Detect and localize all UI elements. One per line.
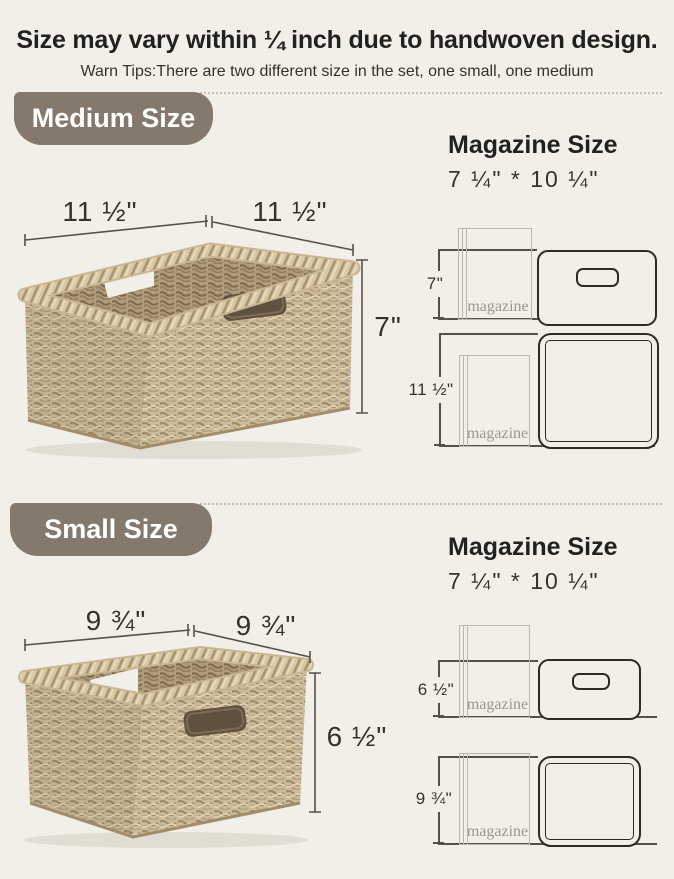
basket-top-inner-outline	[545, 763, 634, 840]
magazine-label: magazine	[466, 696, 529, 714]
basket-handle-slot	[572, 673, 610, 690]
page-subtitle: Warn Tips:There are two different size i…	[0, 63, 674, 81]
small-basket-illustration: 9 ¾" 9 ¾" 6 ½"	[16, 600, 412, 862]
medium-width-label: 11 ½"	[62, 196, 137, 228]
medium-depth-label: 11 ½"	[252, 196, 327, 228]
small-width-label: 9 ¾"	[86, 605, 147, 637]
medium-size-badge: Medium Size	[14, 92, 213, 145]
infographic-canvas: Size may vary within ¼ inch due to handw…	[0, 0, 674, 879]
medium-height-label: 7"	[374, 311, 402, 343]
basket-side-dim-label: 9 ¾"	[414, 786, 454, 812]
dotted-divider	[200, 92, 662, 94]
basket-handle-slot	[576, 268, 619, 287]
medium-magazine-panel: Magazine Size 7 ¼" * 10 ¼" magazine 7"	[420, 126, 674, 456]
small-size-badge: Small Size	[10, 503, 212, 556]
magazine-size-heading: Magazine Size	[448, 131, 618, 160]
magazine-dimensions: 7 ¼" * 10 ¼"	[448, 568, 600, 595]
magazine-label: magazine	[466, 425, 529, 443]
small-height-label: 6 ½"	[327, 721, 388, 753]
basket-height-dim-label: 7"	[425, 271, 446, 297]
dotted-divider	[200, 503, 662, 505]
magazine-size-heading: Magazine Size	[448, 533, 618, 562]
small-magazine-panel: Magazine Size 7 ¼" * 10 ¼" magazine 6 ½"	[420, 528, 674, 858]
basket-front-outline	[538, 659, 641, 720]
magazine-label: magazine	[466, 823, 529, 841]
magazine-outline: magazine	[459, 355, 530, 447]
medium-basket-photo	[16, 192, 412, 468]
basket-top-outline	[538, 756, 641, 847]
magazine-dimensions: 7 ¼" * 10 ¼"	[448, 166, 600, 193]
magazine-outline: magazine	[459, 753, 530, 845]
dim-line	[439, 333, 538, 335]
magazine-outline: magazine	[458, 228, 532, 320]
basket-top-outline	[538, 333, 659, 449]
medium-basket-illustration: 11 ½" 11 ½" 7"	[16, 192, 412, 468]
basket-top-inner-outline	[545, 340, 652, 442]
magazine-label: magazine	[465, 298, 531, 316]
basket-height-dim-label: 6 ½"	[416, 677, 456, 703]
small-depth-label: 9 ¾"	[236, 610, 297, 642]
basket-side-dim-label: 11 ½"	[406, 377, 455, 403]
page-title: Size may vary within ¼ inch due to handw…	[0, 26, 674, 55]
magazine-outline: magazine	[459, 625, 530, 718]
basket-front-outline	[537, 250, 657, 326]
